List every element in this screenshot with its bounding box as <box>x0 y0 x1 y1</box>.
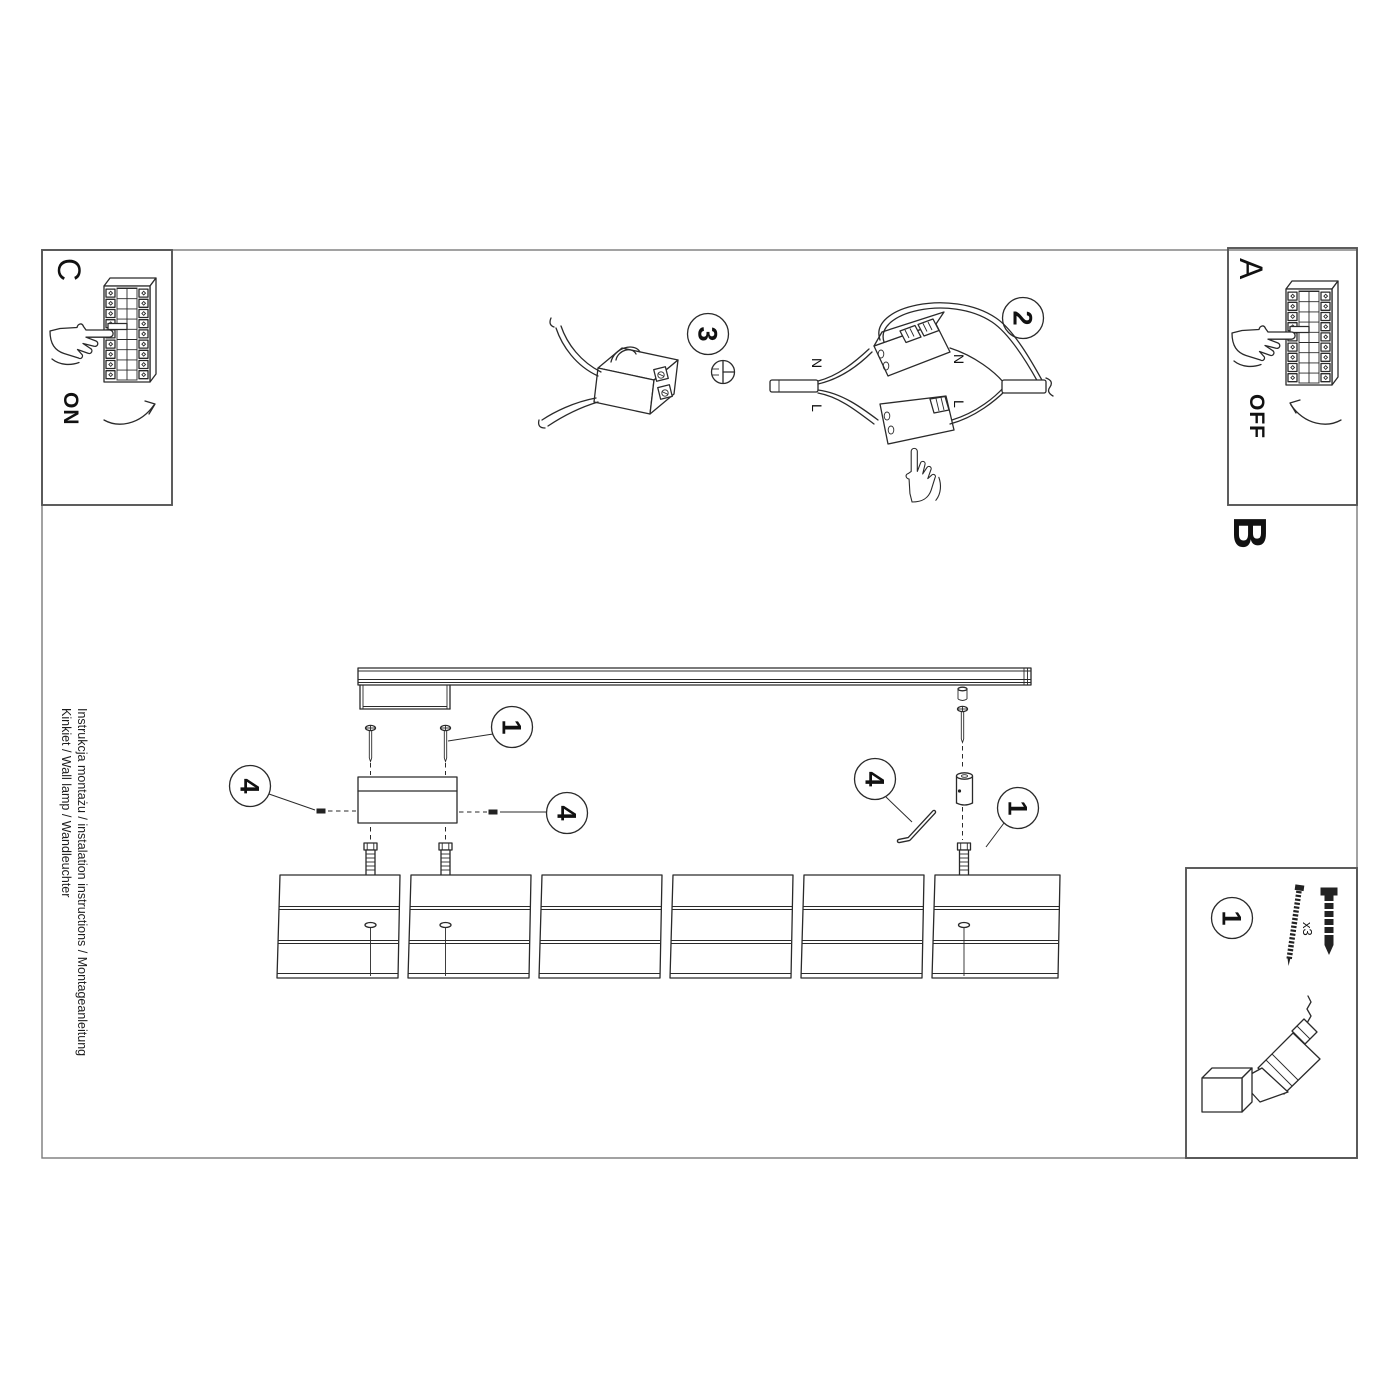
breaker-panel-icon <box>104 278 156 382</box>
step3-illustration: 3 <box>539 314 735 429</box>
wire-label-l2: L <box>951 400 967 408</box>
switch-up-arrow-icon <box>104 401 155 424</box>
mounting-assembly: 1 4 4 4 1 <box>230 668 1061 978</box>
spacer-cylinder <box>957 773 973 805</box>
mounting-screw <box>441 725 451 761</box>
supply-cable-left <box>770 380 818 392</box>
connector-lower <box>880 387 1006 444</box>
product-name: Kinkiet / Wall lamp / Wandleuchter <box>59 708 73 897</box>
step-1-badge: 1 <box>497 719 527 734</box>
wall-panel <box>670 875 793 978</box>
step-4-badge: 4 <box>552 805 582 820</box>
mounting-screw <box>958 706 968 742</box>
mounting-screw <box>366 725 376 761</box>
badge-step4-mid: 4 <box>500 793 588 834</box>
kit-plug-icon <box>1321 888 1337 955</box>
badge-step1-left: 1 <box>448 707 533 748</box>
supply-cable-right <box>1002 380 1046 393</box>
badge-step4-left: 4 <box>230 766 316 811</box>
step2-illustration: 2 N L N L <box>770 298 1053 503</box>
instruction-sheet: Instrukcja montażu / instalation instruc… <box>0 0 1400 1400</box>
wall-panel <box>277 875 400 978</box>
section-a: A OFF <box>1232 258 1341 439</box>
cable-break-mark <box>1046 378 1053 396</box>
cable-split-wires <box>818 349 878 424</box>
flat-screwdriver-icon <box>712 361 735 384</box>
section-c-label: C <box>51 258 87 281</box>
rail-cover <box>360 685 450 709</box>
section-b-label: B <box>1224 516 1276 549</box>
section-c: C ON <box>50 258 156 426</box>
power-off-label: OFF <box>1245 394 1268 439</box>
wall-panel <box>801 875 924 978</box>
power-on-label: ON <box>59 392 82 426</box>
terminal-block-icon <box>594 347 678 414</box>
wire-label-n2: N <box>951 354 967 364</box>
step-3-badge: 3 <box>693 326 723 341</box>
wire-leads <box>539 318 601 428</box>
diagram-canvas: Instrukcja montażu / instalation instruc… <box>0 0 1400 1400</box>
wall-panel <box>539 875 662 978</box>
step-4-badge: 4 <box>860 771 890 786</box>
wall-panel <box>408 875 531 978</box>
wire-label-l: L <box>809 404 825 412</box>
sheet-title: Instrukcja montażu / instalation instruc… <box>75 708 89 1056</box>
wall-bracket <box>358 777 457 823</box>
cordless-drill-icon <box>1202 996 1320 1112</box>
step-1-badge: 1 <box>1003 800 1033 815</box>
kit-screw-count: x3 <box>1300 922 1315 936</box>
track-rail <box>358 668 1031 685</box>
pressing-hand-icon <box>906 448 940 502</box>
step-4-badge: 4 <box>235 778 265 793</box>
section-a-label: A <box>1233 258 1269 280</box>
badge-step4-right: 4 <box>855 759 913 823</box>
step-1-badge: 1 <box>1217 910 1247 925</box>
switch-down-arrow-icon <box>1290 400 1341 424</box>
connector-upper <box>874 312 950 376</box>
badge-step1-right: 1 <box>986 788 1039 848</box>
allen-key-icon <box>899 812 934 841</box>
kit-contents: 1 x3 <box>1202 885 1337 1112</box>
step-2-badge: 2 <box>1008 310 1038 325</box>
page-frame <box>42 248 1357 1158</box>
wall-panels <box>277 875 1060 978</box>
wire-label-n: N <box>809 358 825 368</box>
wall-panel <box>932 875 1060 978</box>
